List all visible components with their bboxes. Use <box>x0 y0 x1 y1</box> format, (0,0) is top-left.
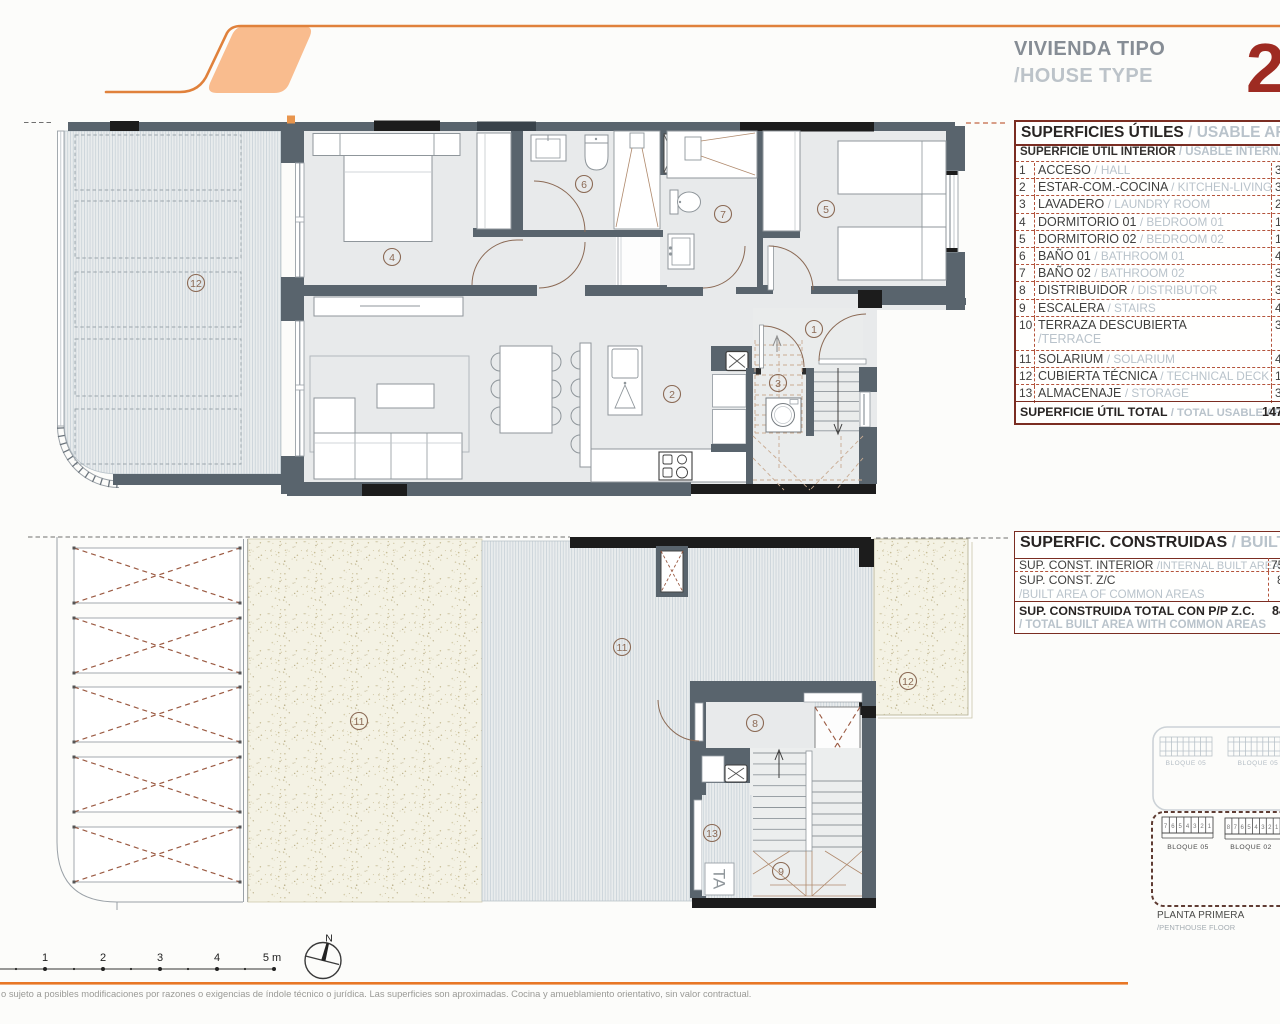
svg-text:2: 2 <box>669 389 675 401</box>
svg-text:N: N <box>325 933 333 945</box>
svg-text:1: 1 <box>42 952 48 964</box>
svg-text:3: 3 <box>157 952 163 964</box>
svg-text:9: 9 <box>778 866 784 878</box>
svg-text:5 m: 5 m <box>263 952 281 964</box>
svg-text:4: 4 <box>214 952 220 964</box>
svg-text:5: 5 <box>823 204 829 216</box>
svg-text:BLOQUE 05: BLOQUE 05 <box>1167 844 1208 851</box>
svg-text:12: 12 <box>190 278 202 290</box>
svg-text:1: 1 <box>811 324 817 336</box>
svg-text:7: 7 <box>720 209 726 221</box>
svg-text:TA: TA <box>710 869 729 890</box>
svg-text:12: 12 <box>902 676 914 688</box>
svg-text:2: 2 <box>100 952 106 964</box>
svg-text:BLOQUE 02: BLOQUE 02 <box>1230 844 1271 851</box>
svg-text:6: 6 <box>581 179 587 191</box>
svg-text:BLOQUE 05: BLOQUE 05 <box>1166 760 1207 767</box>
svg-text:13: 13 <box>706 828 718 840</box>
svg-text:3: 3 <box>775 378 781 390</box>
svg-text:11: 11 <box>354 716 365 728</box>
svg-text:8: 8 <box>752 718 758 730</box>
svg-text:4: 4 <box>389 252 395 264</box>
svg-text:11: 11 <box>617 642 628 654</box>
svg-text:BLOQUE 05: BLOQUE 05 <box>1238 760 1279 767</box>
